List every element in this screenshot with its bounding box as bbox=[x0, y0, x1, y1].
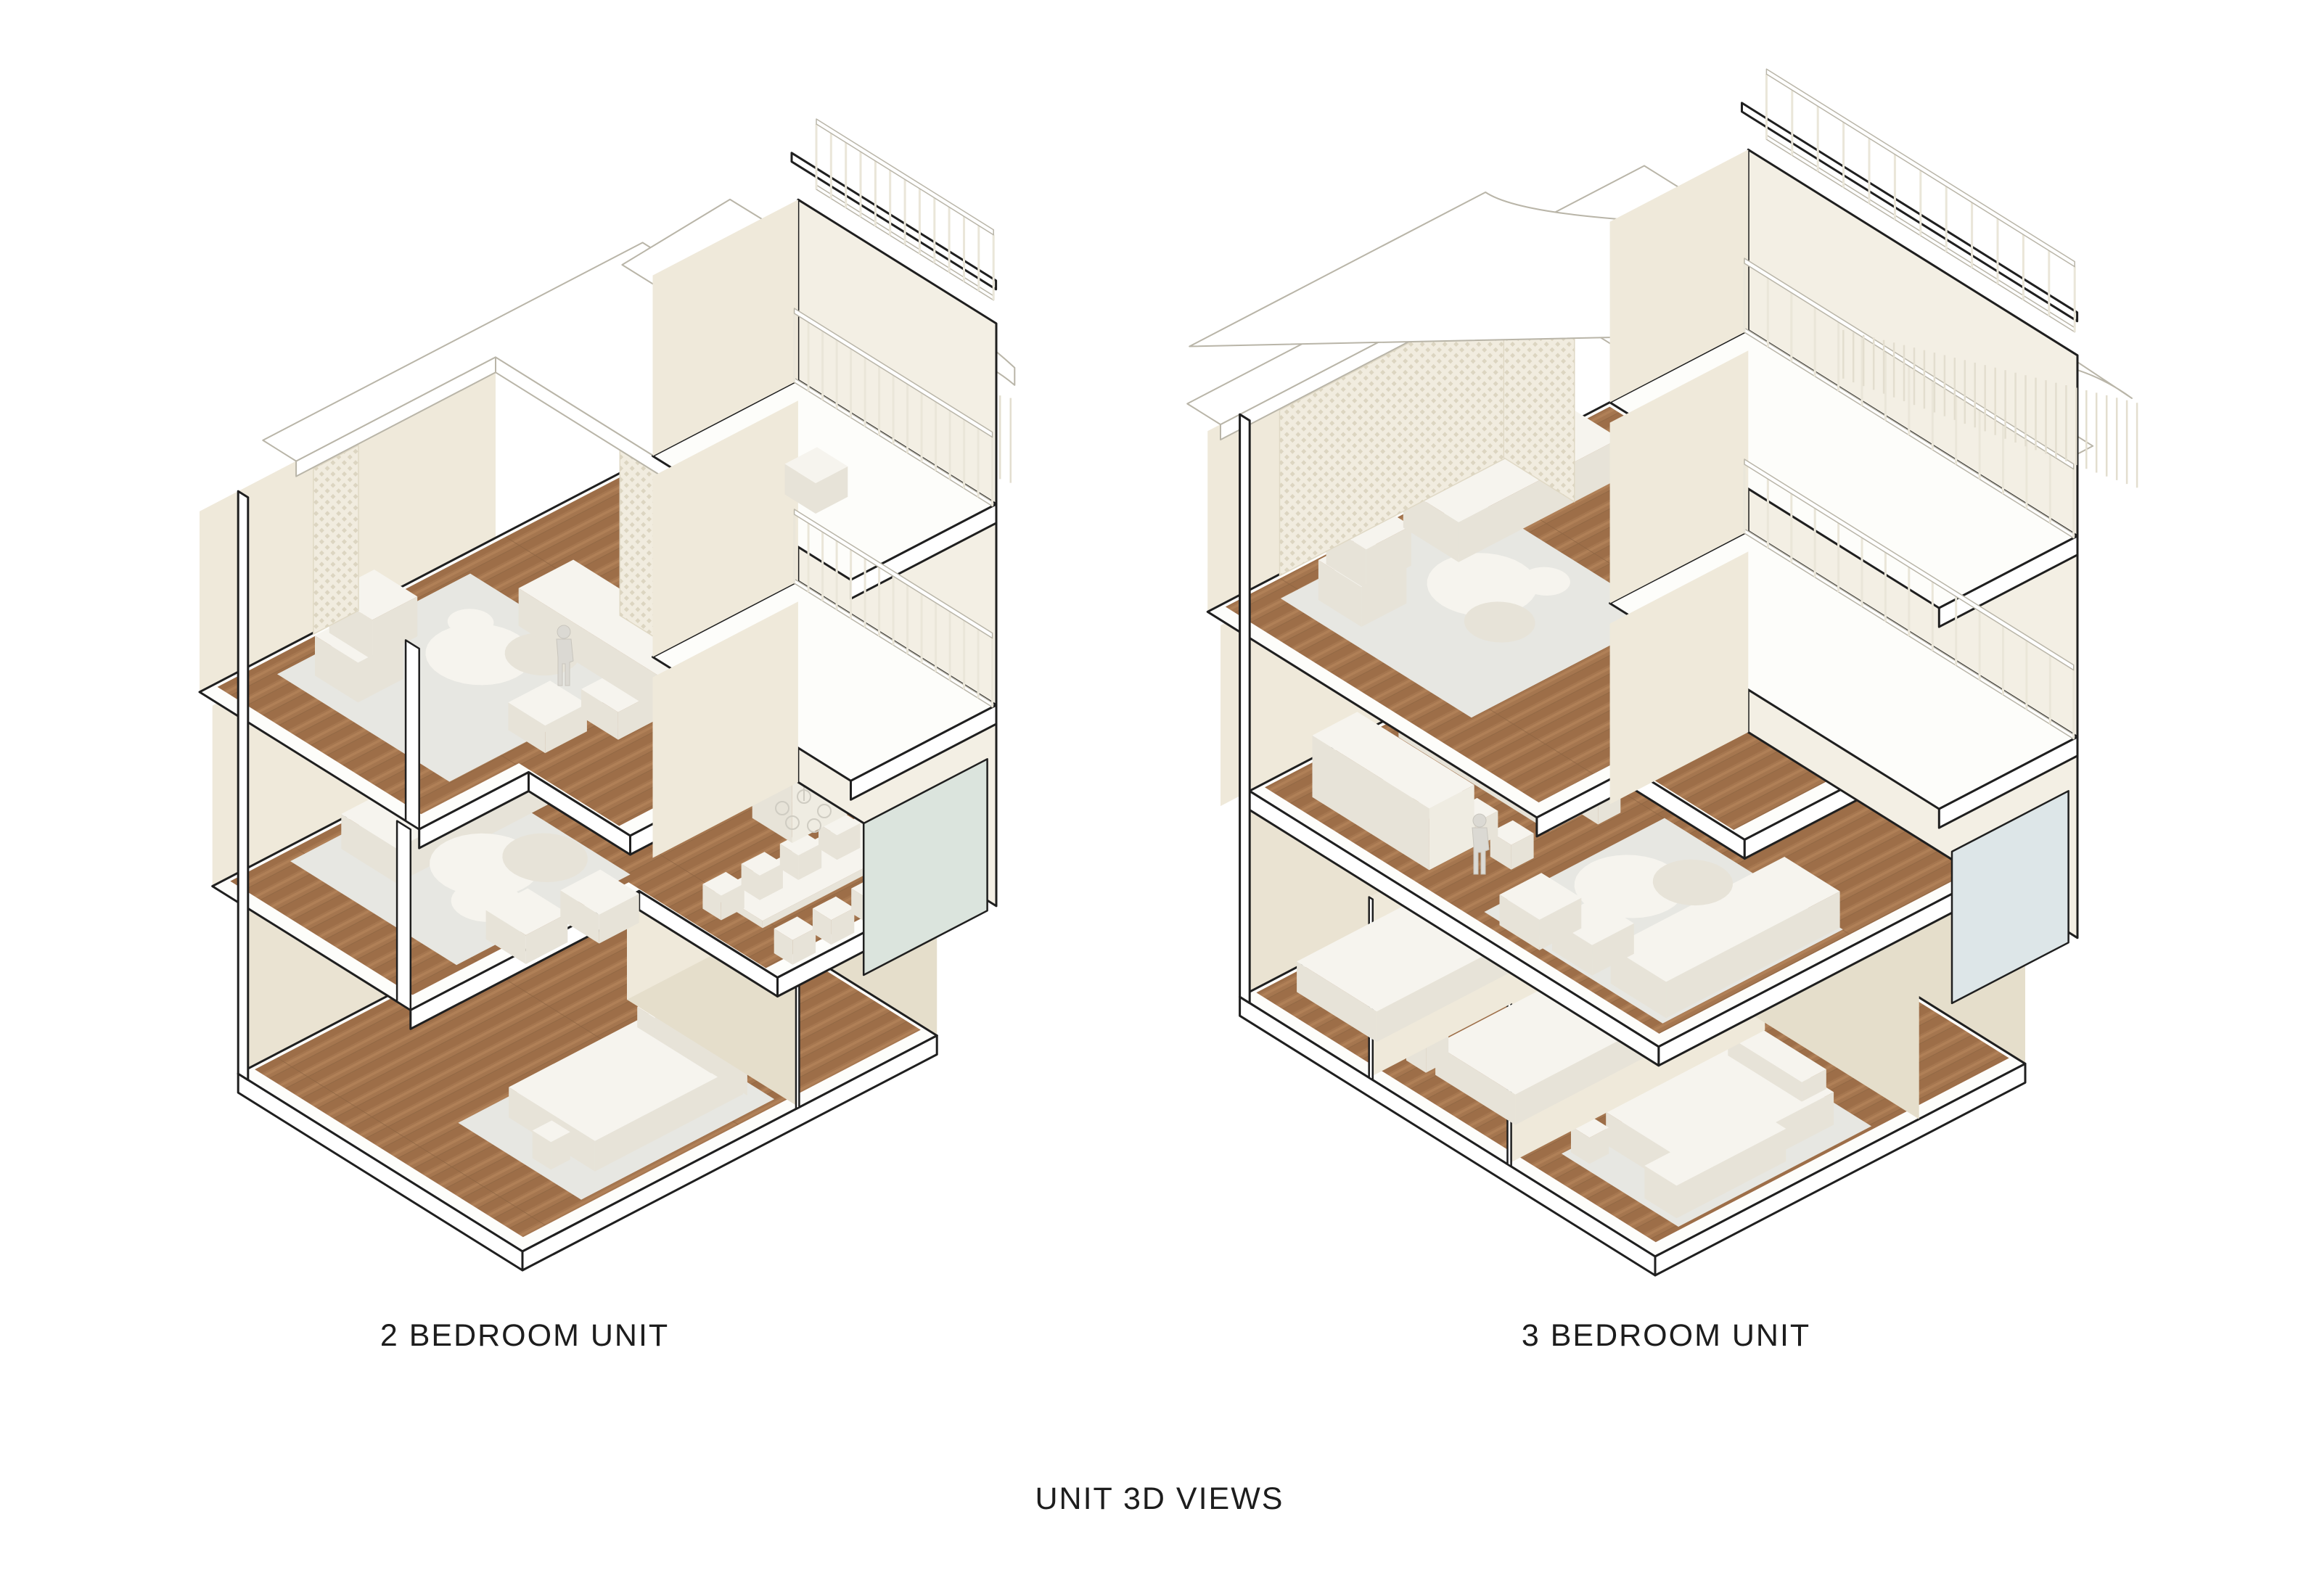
svg-text:2 BEDROOM UNIT: 2 BEDROOM UNIT bbox=[380, 1318, 669, 1353]
svg-text:3 BEDROOM UNIT: 3 BEDROOM UNIT bbox=[1522, 1318, 1810, 1353]
svg-text:UNIT 3D VIEWS: UNIT 3D VIEWS bbox=[1035, 1481, 1284, 1516]
